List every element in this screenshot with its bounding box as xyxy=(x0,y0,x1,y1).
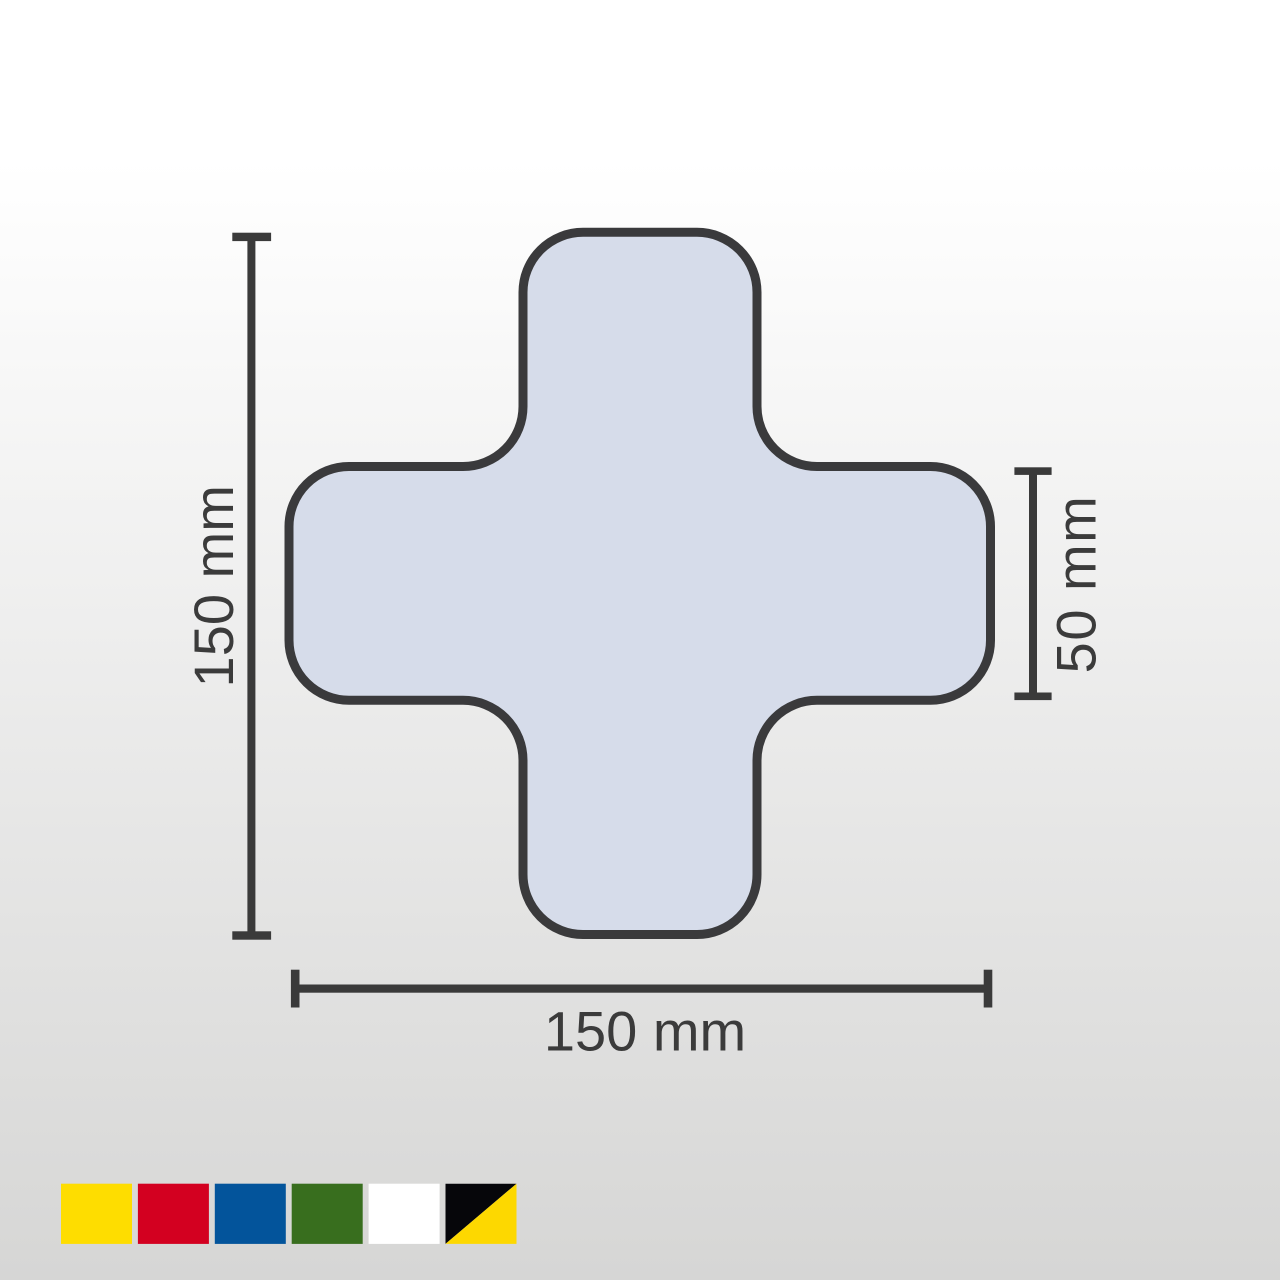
svg-text:150 mm: 150 mm xyxy=(544,1000,746,1063)
svg-text:50 mm: 50 mm xyxy=(1045,495,1108,674)
svg-text:150 mm: 150 mm xyxy=(182,485,245,687)
